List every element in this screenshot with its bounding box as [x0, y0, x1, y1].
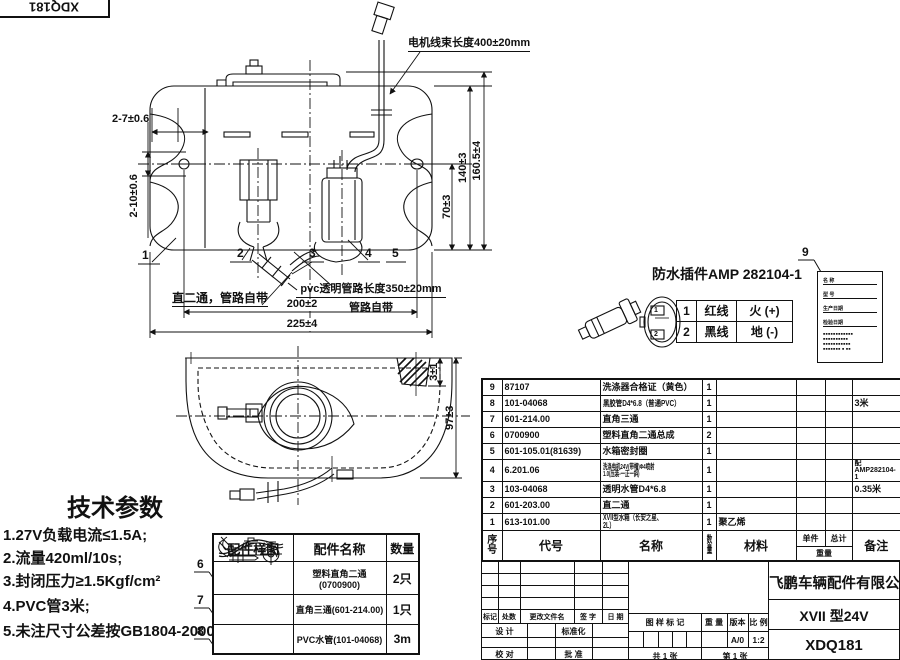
connector-face-pin1: 1 [654, 307, 658, 314]
dim-total-width: 225±4 [275, 319, 329, 331]
balloon-6: 6 [197, 558, 204, 571]
rev-col-mark: 标记 [482, 612, 498, 622]
balloon-8: 8 [197, 625, 204, 638]
certificate-field: 生产日期 [823, 305, 877, 313]
connector-title: 防水插件AMP 282104-1 [652, 267, 802, 282]
balloon-4: 4 [365, 247, 372, 260]
bom-row: 46.201.06洗涤电机24V(带帽)Φ4喷射1.0(压装-一正一斜)1配AM… [482, 460, 900, 482]
connector-pin-table: 1 红线 火 (+) 2 黑线 地 (-) [676, 300, 793, 343]
acc-header-name: 配件名称 [293, 534, 386, 562]
note-pipe-included: 管路自带 [296, 303, 446, 315]
bom-row: 60700900塑料直角二通总成2 [482, 428, 900, 444]
bom-row: 8101-04068黑胶管D4*6.8（普通PVC）13米 [482, 396, 900, 412]
bom-header-code: 代号 [502, 531, 600, 562]
acc-qty: 3m [386, 625, 419, 655]
certificate-field: 型 号 [823, 291, 877, 299]
tech-param-item: 5.未注尺寸公差按GB1804-2000。 [3, 624, 230, 640]
pin-row: 1 红线 火 (+) [677, 301, 793, 322]
stamp-version: 版本 [727, 617, 748, 628]
note-pvc-pipe: pvc透明管路长度350±20mm [296, 284, 446, 298]
bom-header-qty: 数量 [702, 531, 716, 562]
acc-name: 塑料直角二通(0700900) [293, 562, 386, 595]
acc-qty: 2只 [386, 562, 419, 595]
certificate-note: ■■■■■■■■■■■■ ■■■■■■■■■■ ■■■■■■■■■■■ ■■■■… [823, 332, 877, 352]
elbow-sample-drawing [213, 562, 291, 567]
dim-total-height: 160.5±4 [472, 135, 484, 187]
acc-header-qty: 数量 [386, 534, 419, 562]
corner-drawing-number-box: XDQ181 [0, 0, 110, 18]
dim-lip: 3±1 [429, 359, 441, 385]
corner-drawing-number: XDQ181 [6, 0, 102, 14]
pin-wire: 红线 [697, 301, 737, 322]
connector-drawing [575, 296, 680, 347]
balloon-1: 1 [142, 249, 149, 262]
stamp-mark: 图 样 标 记 [629, 617, 701, 628]
accessory-table: 配件样图 配件名称 数量 塑料直角二通(0700900) 2只 [212, 533, 420, 655]
rev-col-sign: 签 字 [574, 612, 602, 622]
pin-polarity: 火 (+) [737, 301, 793, 322]
title-block: 标记 处数 更改文件名 签 字 日 期 设 计 标准化 校 对 批 准 审 核 … [481, 560, 900, 660]
accessory-row: 直角三通(601-214.00) 1只 [213, 595, 419, 625]
bom-row: 5601-105.01(81639)水箱密封圈1 [482, 444, 900, 460]
accessory-row: 塑料直角二通(0700900) 2只 [213, 562, 419, 595]
sign-approve: 批 准 [555, 649, 592, 660]
tech-param-item: 4.PVC管3米; [3, 599, 90, 615]
stamp-scale: 比 例 [748, 617, 769, 628]
certificate-field: 检验日期 [823, 319, 877, 327]
rev-col-date: 日 期 [602, 612, 629, 622]
bom-header-seq: 序号 [482, 531, 502, 562]
certificate-card: 名 称 型 号 生产日期 检验日期 ■■■■■■■■■■■■ ■■■■■■■■■… [817, 271, 883, 363]
stamp-version-value: A/0 [727, 635, 748, 645]
sign-standard: 标准化 [555, 626, 592, 637]
rev-col-count: 处数 [498, 612, 520, 622]
acc-qty: 1只 [386, 595, 419, 625]
stamp-sheet-total: 共 1 张 [629, 651, 701, 660]
pin-row: 2 黑线 地 (-) [677, 322, 793, 343]
engineering-drawing-sheet: { "frame": { "drawing_no": "XDQ181" }, "… [0, 0, 900, 660]
accessory-row: PVC水管(101-04068) 3m [213, 625, 419, 655]
pin-polarity: 地 (-) [737, 322, 793, 343]
certificate-field: 名 称 [823, 277, 877, 285]
bom-header-unit: 单件 [796, 531, 825, 547]
bom-header-weight: 重量 [796, 547, 852, 562]
bom-row: 3103-04068透明水管D4*6.810.35米 [482, 482, 900, 498]
tech-param-item: 2.流量420ml/10s; [3, 551, 122, 567]
bom-header-name: 名称 [600, 531, 702, 562]
acc-name: PVC水管(101-04068) [293, 625, 386, 655]
balloon-9: 9 [802, 246, 809, 259]
pin-no: 2 [677, 322, 697, 343]
stamp-sheet-no: 第 1 张 [701, 651, 769, 660]
product-model: XVII 型24V [769, 606, 899, 626]
bom-table: 987107洗涤器合格证（黄色）1 8101-04068黑胶管D4*6.8（普通… [481, 378, 900, 562]
pin-wire: 黑线 [697, 322, 737, 343]
bom-header-remark: 备注 [852, 531, 900, 562]
bom-header-total: 总计 [825, 531, 852, 547]
dim-ear-hole-h: 2-10±0.6 [129, 169, 141, 223]
drawing-number: XDQ181 [769, 637, 899, 654]
balloon-2: 2 [237, 247, 244, 260]
balloon-3: 3 [309, 247, 316, 260]
bom-row: 2601-203.00直二通1 [482, 498, 900, 514]
dim-body-height: 140±3 [458, 148, 470, 188]
bom-row: 7601-214.00直角三通1 [482, 412, 900, 428]
harness-length-label: 电机线束长度400±20mm [408, 38, 530, 52]
dim-ear-hole-w: 2-7±0.6 [112, 114, 149, 126]
tech-params-title: 技术参数 [30, 496, 200, 521]
dim-pump-height: 70±3 [442, 191, 454, 223]
bom-header-row: 序号 代号 名称 数量 材料 单件 总计 备注 [482, 531, 900, 547]
stamp-weight: 重 量 [701, 617, 727, 628]
balloon-5: 5 [392, 247, 399, 260]
dim-depth: 97±3 [445, 402, 457, 434]
stamp-scale-value: 1:2 [748, 635, 769, 645]
balloon-7: 7 [197, 594, 204, 607]
bom-header-material: 材料 [716, 531, 796, 562]
top-view-drawing [176, 346, 470, 505]
sign-check: 校 对 [482, 649, 527, 660]
sign-design: 设 计 [482, 626, 527, 637]
tech-param-item: 3.封闭压力≥1.5Kgf/cm² [3, 574, 160, 590]
acc-name: 直角三通(601-214.00) [293, 595, 386, 625]
tech-param-item: 1.27V负载电流≤1.5A; [3, 528, 147, 544]
company-name: 飞鹏车辆配件有限公司 [769, 572, 899, 593]
connector-face-pin2: 2 [654, 331, 658, 338]
pin-no: 1 [677, 301, 697, 322]
note-straight-fitting: 直二通，管路自带 [172, 292, 268, 307]
rev-col-file: 更改文件名 [520, 612, 574, 622]
bom-row: 987107洗涤器合格证（黄色）1 [482, 379, 900, 396]
bom-row: 1613-101.00XVII型水箱（长安之星、2L）1聚乙烯 [482, 514, 900, 531]
